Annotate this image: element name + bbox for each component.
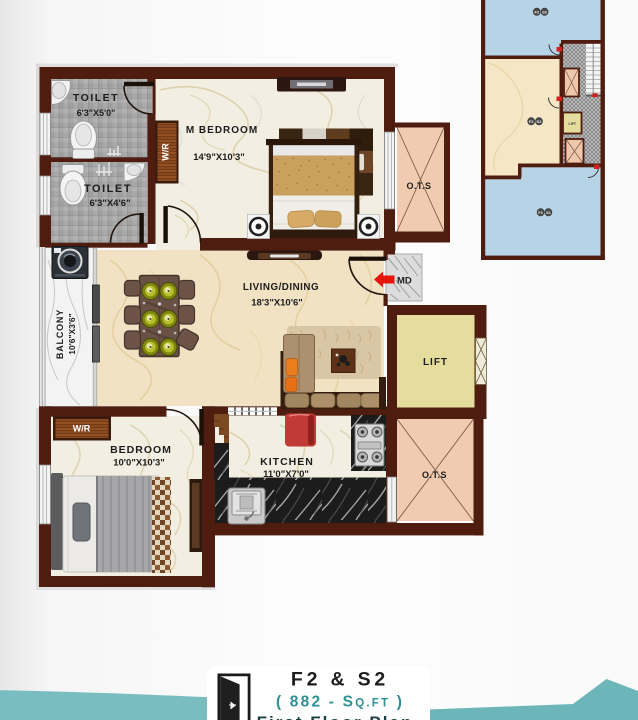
svg-text:F2: F2: [529, 119, 534, 124]
svg-text:14'9"X10'3": 14'9"X10'3": [193, 152, 245, 163]
svg-text:W/R: W/R: [161, 143, 171, 161]
svg-text:S2: S2: [537, 119, 543, 124]
svg-text:O.T.S: O.T.S: [406, 181, 431, 191]
svg-text:First Floor Plan: First Floor Plan: [257, 713, 414, 720]
svg-text:W/R: W/R: [73, 424, 91, 434]
svg-text:S2: S2: [542, 9, 548, 14]
svg-text:BEDROOM: BEDROOM: [110, 444, 172, 456]
svg-text:O.T.S: O.T.S: [422, 470, 447, 480]
svg-text:MD: MD: [397, 276, 412, 287]
svg-text:F2: F2: [534, 9, 539, 14]
svg-text:10'0"X10'3": 10'0"X10'3": [113, 458, 165, 469]
svg-text:F1: F1: [538, 210, 543, 215]
svg-text:18'3"X10'6": 18'3"X10'6": [251, 298, 303, 309]
svg-text:TOILET: TOILET: [84, 183, 132, 195]
svg-text:F2 & S2: F2 & S2: [291, 669, 389, 691]
svg-text:11'0"X7'0": 11'0"X7'0": [263, 469, 309, 480]
svg-text:6'3"X5'0": 6'3"X5'0": [77, 108, 116, 118]
svg-text:M BEDROOM: M BEDROOM: [186, 125, 258, 136]
svg-text:TOILET: TOILET: [73, 92, 119, 104]
svg-text:BALCONY: BALCONY: [55, 309, 65, 359]
svg-text:6'3"X4'6": 6'3"X4'6": [90, 198, 131, 209]
svg-text:LIVING/DINING: LIVING/DINING: [243, 282, 319, 293]
svg-text:KITCHEN: KITCHEN: [260, 456, 314, 468]
svg-text:S1: S1: [546, 210, 552, 215]
svg-text:LIFT: LIFT: [423, 357, 448, 368]
svg-text:LIFT: LIFT: [569, 122, 577, 126]
svg-text:10'6"X3'6": 10'6"X3'6": [67, 313, 77, 354]
